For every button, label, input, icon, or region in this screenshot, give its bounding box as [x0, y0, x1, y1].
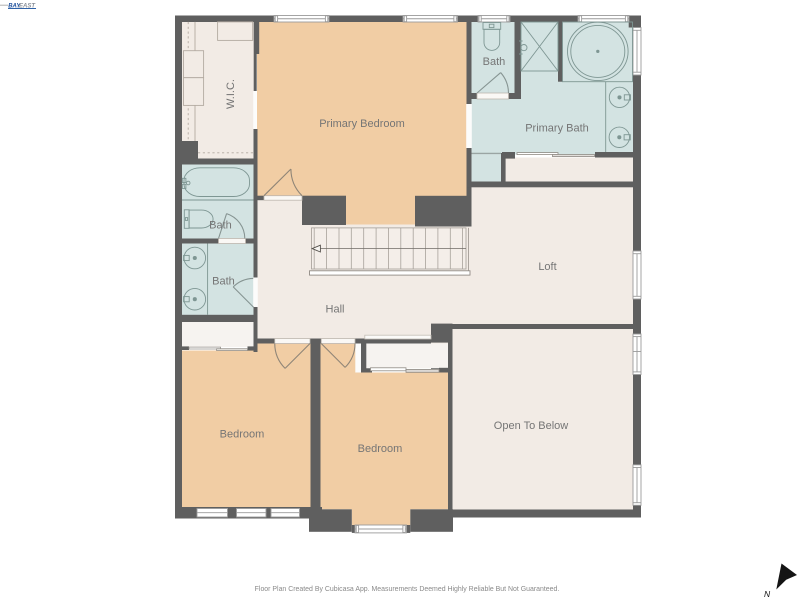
svg-text:Bath: Bath	[212, 275, 235, 287]
svg-text:Hall: Hall	[326, 304, 345, 316]
svg-text:Open To Below: Open To Below	[494, 420, 568, 432]
svg-text:Bedroom: Bedroom	[220, 429, 265, 441]
svg-text:Bedroom: Bedroom	[358, 443, 403, 455]
svg-text:Bath: Bath	[483, 56, 506, 68]
svg-text:W.I.C.: W.I.C.	[225, 79, 237, 109]
svg-text:Primary Bath: Primary Bath	[525, 123, 589, 135]
svg-text:N: N	[764, 589, 771, 598]
svg-text:Primary Bedroom: Primary Bedroom	[319, 118, 405, 130]
svg-text:Loft: Loft	[538, 261, 556, 273]
svg-text:Bath: Bath	[209, 220, 232, 232]
svg-text:Floor Plan Created By Cubicasa: Floor Plan Created By Cubicasa App. Meas…	[255, 586, 560, 593]
